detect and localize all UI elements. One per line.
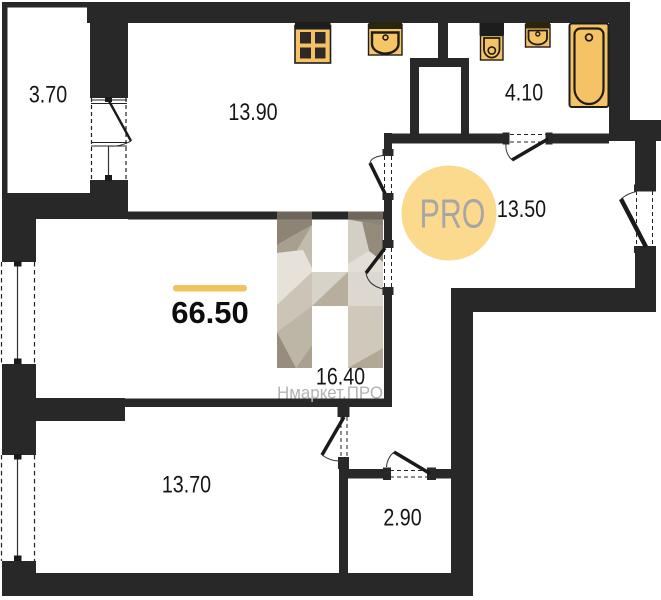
- svg-text:2.90: 2.90: [383, 504, 421, 531]
- svg-text:13.50: 13.50: [497, 195, 546, 222]
- svg-text:PRO: PRO: [420, 190, 486, 237]
- svg-text:13.70: 13.70: [162, 471, 211, 498]
- svg-text:4.10: 4.10: [505, 79, 543, 106]
- svg-text:3.70: 3.70: [29, 81, 67, 108]
- svg-text:Нмаркет.ПРО: Нмаркет.ПРО: [277, 383, 383, 403]
- svg-text:13.90: 13.90: [228, 98, 277, 125]
- svg-text:66.50: 66.50: [171, 295, 249, 330]
